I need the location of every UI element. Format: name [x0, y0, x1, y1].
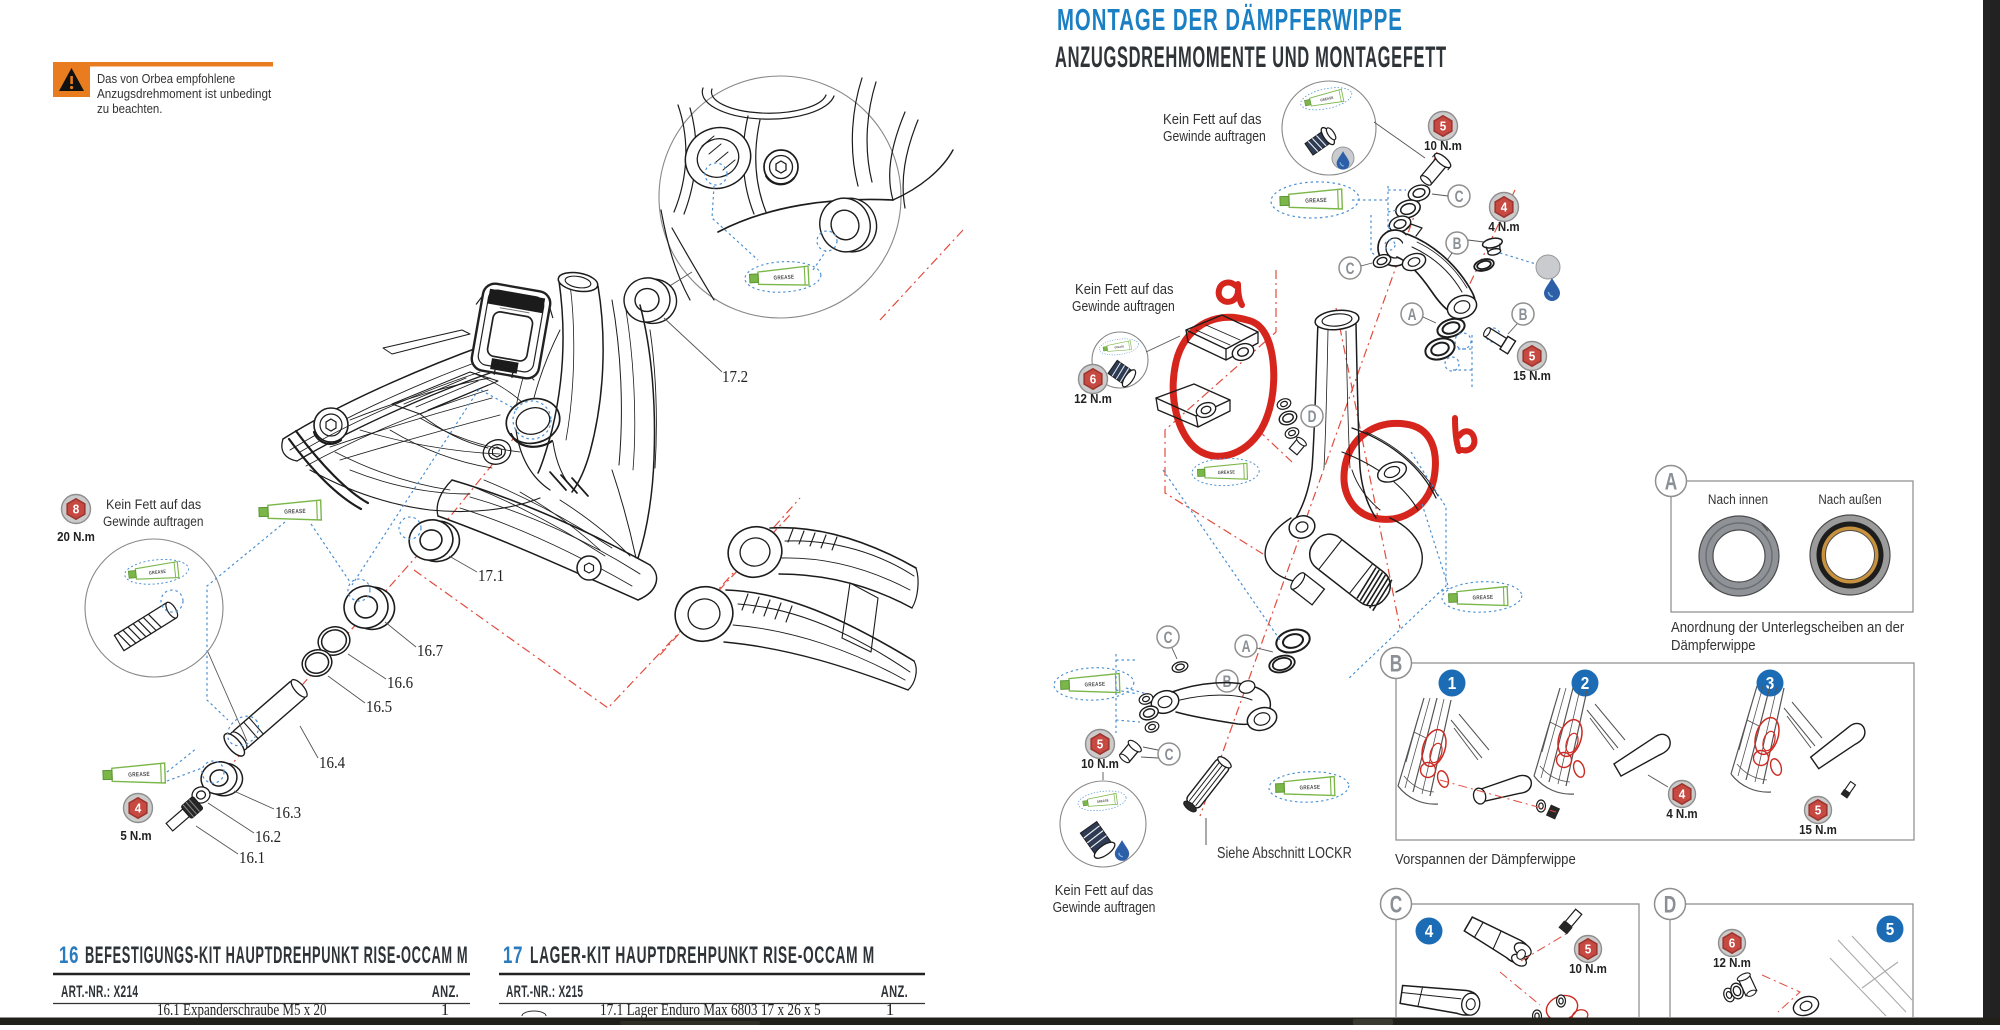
- svg-text:GREASE: GREASE: [1084, 681, 1105, 688]
- svg-text:17.1 Lager Enduro Max 6803 17: 17.1 Lager Enduro Max 6803 17 x 26 x 5: [600, 1001, 821, 1020]
- svg-text:5: 5: [1097, 737, 1104, 752]
- svg-text:Vorspannen der Dämpferwippe: Vorspannen der Dämpferwippe: [1395, 850, 1576, 867]
- svg-text:20 N.m: 20 N.m: [57, 530, 95, 545]
- svg-text:Kein Fett auf das: Kein Fett auf das: [1163, 111, 1262, 127]
- svg-text:16: 16: [59, 942, 79, 969]
- svg-text:Anordnung der Unterlegscheiben: Anordnung der Unterlegscheiben an der: [1671, 618, 1905, 635]
- svg-text:Gewinde auftragen: Gewinde auftragen: [1072, 298, 1175, 314]
- svg-text:4: 4: [1425, 921, 1434, 941]
- svg-text:16.4: 16.4: [319, 754, 345, 772]
- svg-text:4: 4: [1679, 787, 1686, 802]
- svg-text:17: 17: [503, 942, 523, 969]
- svg-text:10 N.m: 10 N.m: [1424, 139, 1462, 154]
- svg-text:6: 6: [1729, 936, 1736, 951]
- svg-text:BEFESTIGUNGS-KIT HAUPTDREHPUNK: BEFESTIGUNGS-KIT HAUPTDREHPUNKT RISE-OCC…: [85, 943, 468, 969]
- svg-text:LAGER-KIT HAUPTDREHPUNKT RISE-: LAGER-KIT HAUPTDREHPUNKT RISE-OCCAM M: [530, 942, 875, 969]
- svg-text:GREASE: GREASE: [773, 274, 794, 282]
- svg-text:4 N.m: 4 N.m: [1488, 220, 1519, 235]
- svg-text:Anzugsdrehmoment ist unbedingt: Anzugsdrehmoment ist unbedingt: [97, 86, 272, 101]
- svg-text:D: D: [1308, 408, 1317, 426]
- svg-text:A: A: [1408, 306, 1417, 324]
- svg-text:1: 1: [441, 1000, 450, 1019]
- svg-text:Nach außen: Nach außen: [1818, 491, 1881, 507]
- svg-text:10 N.m: 10 N.m: [1569, 962, 1607, 977]
- svg-text:GREASE: GREASE: [128, 771, 150, 778]
- svg-text:ANZ.: ANZ.: [881, 983, 908, 1002]
- svg-text:A: A: [1665, 469, 1677, 495]
- svg-text:ART.-NR.: X215: ART.-NR.: X215: [506, 981, 583, 1000]
- svg-text:15 N.m: 15 N.m: [1513, 369, 1551, 384]
- svg-text:A: A: [1242, 638, 1251, 656]
- svg-text:GREASE: GREASE: [1299, 784, 1320, 791]
- svg-text:Kein Fett auf das: Kein Fett auf das: [1055, 882, 1154, 898]
- svg-text:ANZUGSDREHMOMENTE UND MONTAGEF: ANZUGSDREHMOMENTE UND MONTAGEFETT: [1055, 41, 1447, 74]
- svg-text:C: C: [1455, 188, 1464, 206]
- svg-text:10 N.m: 10 N.m: [1081, 757, 1119, 772]
- svg-text:5 N.m: 5 N.m: [120, 829, 151, 844]
- svg-text:2: 2: [1581, 673, 1590, 693]
- svg-text:Gewinde auftragen: Gewinde auftragen: [1053, 899, 1156, 915]
- svg-text:ANZ.: ANZ.: [432, 983, 459, 1002]
- svg-text:5: 5: [1886, 919, 1895, 939]
- svg-text:Gewinde auftragen: Gewinde auftragen: [103, 513, 204, 529]
- svg-text:Dämpferwippe: Dämpferwippe: [1671, 636, 1756, 653]
- svg-text:16.1 Expanderschraube M5 x 20: 16.1 Expanderschraube M5 x 20: [157, 1002, 327, 1020]
- svg-text:5: 5: [1815, 803, 1822, 818]
- svg-text:8: 8: [73, 502, 80, 517]
- svg-text:D: D: [1664, 892, 1676, 918]
- svg-text:16.5: 16.5: [366, 698, 392, 716]
- svg-text:GREASE: GREASE: [1218, 469, 1235, 475]
- svg-text:1: 1: [886, 1000, 895, 1019]
- svg-text:16.7: 16.7: [417, 642, 443, 660]
- svg-text:Nach innen: Nach innen: [1708, 491, 1768, 507]
- svg-text:5: 5: [1529, 349, 1536, 364]
- svg-text:C: C: [1390, 892, 1402, 918]
- svg-text:ART.-NR.: X214: ART.-NR.: X214: [61, 981, 138, 1000]
- svg-text:4: 4: [1501, 200, 1508, 215]
- svg-text:B: B: [1519, 306, 1528, 324]
- svg-text:Gewinde auftragen: Gewinde auftragen: [1163, 128, 1266, 144]
- svg-text:Das von Orbea empfohlene: Das von Orbea empfohlene: [97, 71, 235, 86]
- svg-text:16.1: 16.1: [239, 849, 265, 867]
- svg-text:4: 4: [135, 801, 142, 816]
- svg-text:GREASE: GREASE: [1472, 594, 1493, 601]
- svg-text:5: 5: [1440, 119, 1447, 134]
- svg-text:GREASE: GREASE: [284, 508, 306, 515]
- svg-text:B: B: [1390, 651, 1402, 677]
- svg-text:12 N.m: 12 N.m: [1074, 392, 1112, 407]
- svg-text:6: 6: [1090, 372, 1097, 387]
- svg-text:15 N.m: 15 N.m: [1799, 823, 1837, 838]
- svg-text:1: 1: [1448, 673, 1457, 693]
- svg-text:Kein Fett auf das: Kein Fett auf das: [1075, 281, 1174, 297]
- svg-text:5: 5: [1585, 942, 1592, 957]
- svg-text:17.1: 17.1: [478, 567, 504, 585]
- svg-text:GREASE: GREASE: [1305, 197, 1327, 204]
- svg-text:12 N.m: 12 N.m: [1713, 956, 1751, 971]
- svg-text:Siehe Abschnitt LOCKR: Siehe Abschnitt LOCKR: [1217, 845, 1352, 862]
- svg-text:17.2: 17.2: [722, 368, 748, 386]
- svg-text:16.3: 16.3: [275, 804, 301, 822]
- svg-text:16.2: 16.2: [255, 828, 281, 846]
- svg-text:zu beachten.: zu beachten.: [97, 101, 162, 116]
- svg-text:C: C: [1346, 260, 1355, 278]
- svg-text:C: C: [1165, 746, 1174, 764]
- svg-text:4 N.m: 4 N.m: [1666, 807, 1697, 822]
- svg-text:3: 3: [1766, 673, 1775, 693]
- svg-text:Kein Fett auf das: Kein Fett auf das: [106, 496, 201, 512]
- svg-text:MONTAGE DER DÄMPFERWIPPE: MONTAGE DER DÄMPFERWIPPE: [1057, 2, 1403, 37]
- svg-text:B: B: [1453, 235, 1462, 253]
- svg-text:16.6: 16.6: [387, 674, 413, 692]
- svg-text:C: C: [1164, 629, 1173, 647]
